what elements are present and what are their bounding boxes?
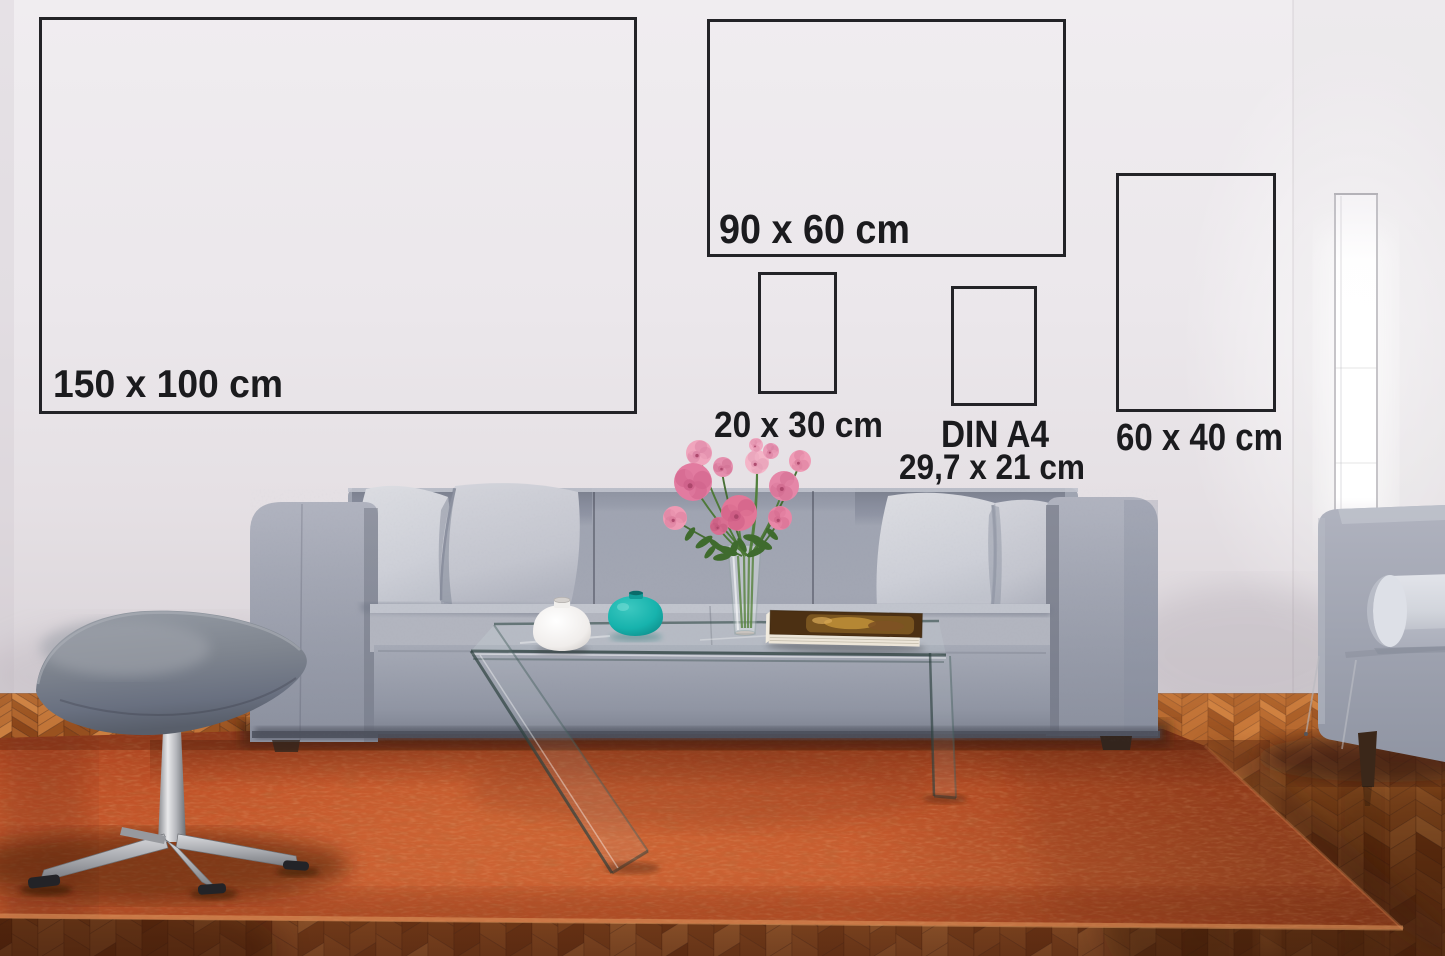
svg-text:90 x 60 cm: 90 x 60 cm — [719, 206, 910, 252]
svg-text:150 x 100 cm: 150 x 100 cm — [53, 363, 283, 406]
svg-text:29,7 x 21 cm: 29,7 x 21 cm — [899, 448, 1085, 487]
svg-text:20 x 30 cm: 20 x 30 cm — [714, 404, 883, 445]
svg-text:60 x 40 cm: 60 x 40 cm — [1116, 417, 1283, 459]
